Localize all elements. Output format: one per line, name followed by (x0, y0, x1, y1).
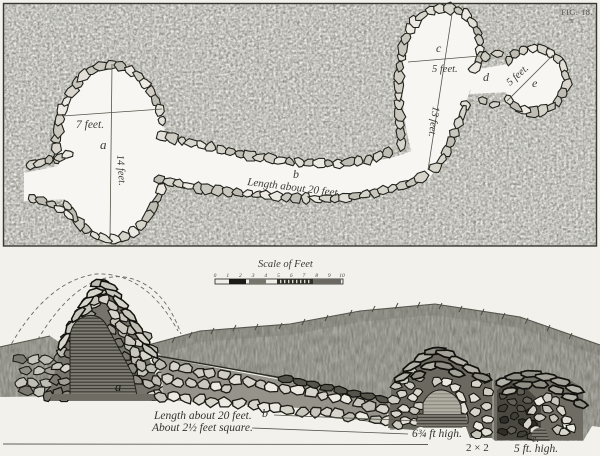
svg-text:5 feet.: 5 feet. (432, 64, 458, 75)
svg-text:7 feet.: 7 feet. (76, 119, 104, 131)
svg-text:FIG. 18.: FIG. 18. (561, 7, 593, 17)
svg-text:3: 3 (251, 273, 255, 279)
svg-text:d: d (483, 70, 490, 84)
svg-text:14 feet.: 14 feet. (114, 154, 127, 186)
svg-text:0: 0 (214, 273, 217, 279)
svg-text:c: c (436, 41, 442, 55)
svg-text:4: 4 (264, 272, 267, 279)
svg-text:7: 7 (303, 273, 306, 279)
svg-text:e: e (532, 76, 538, 90)
svg-text:x: x (570, 16, 574, 25)
svg-text:Scale of Feet: Scale of Feet (258, 259, 314, 270)
svg-text:10: 10 (339, 273, 345, 279)
svg-text:5 ft. high.: 5 ft. high. (514, 443, 558, 455)
svg-text:b: b (293, 167, 299, 181)
svg-text:5: 5 (277, 273, 280, 279)
svg-text:6¾ ft high.: 6¾ ft high. (412, 428, 462, 440)
svg-text:9: 9 (328, 273, 331, 279)
svg-text:2 × 2: 2 × 2 (466, 442, 489, 454)
svg-text:6: 6 (290, 273, 293, 279)
svg-text:a: a (115, 380, 121, 394)
svg-text:2: 2 (239, 273, 242, 279)
svg-text:Length about 20 feet.: Length about 20 feet. (153, 410, 252, 422)
svg-text:1: 1 (226, 273, 229, 279)
svg-text:About 2½ feet square.: About 2½ feet square. (151, 422, 253, 434)
svg-text:b: b (262, 406, 268, 420)
svg-text:a: a (100, 137, 107, 152)
svg-text:8: 8 (315, 273, 318, 279)
